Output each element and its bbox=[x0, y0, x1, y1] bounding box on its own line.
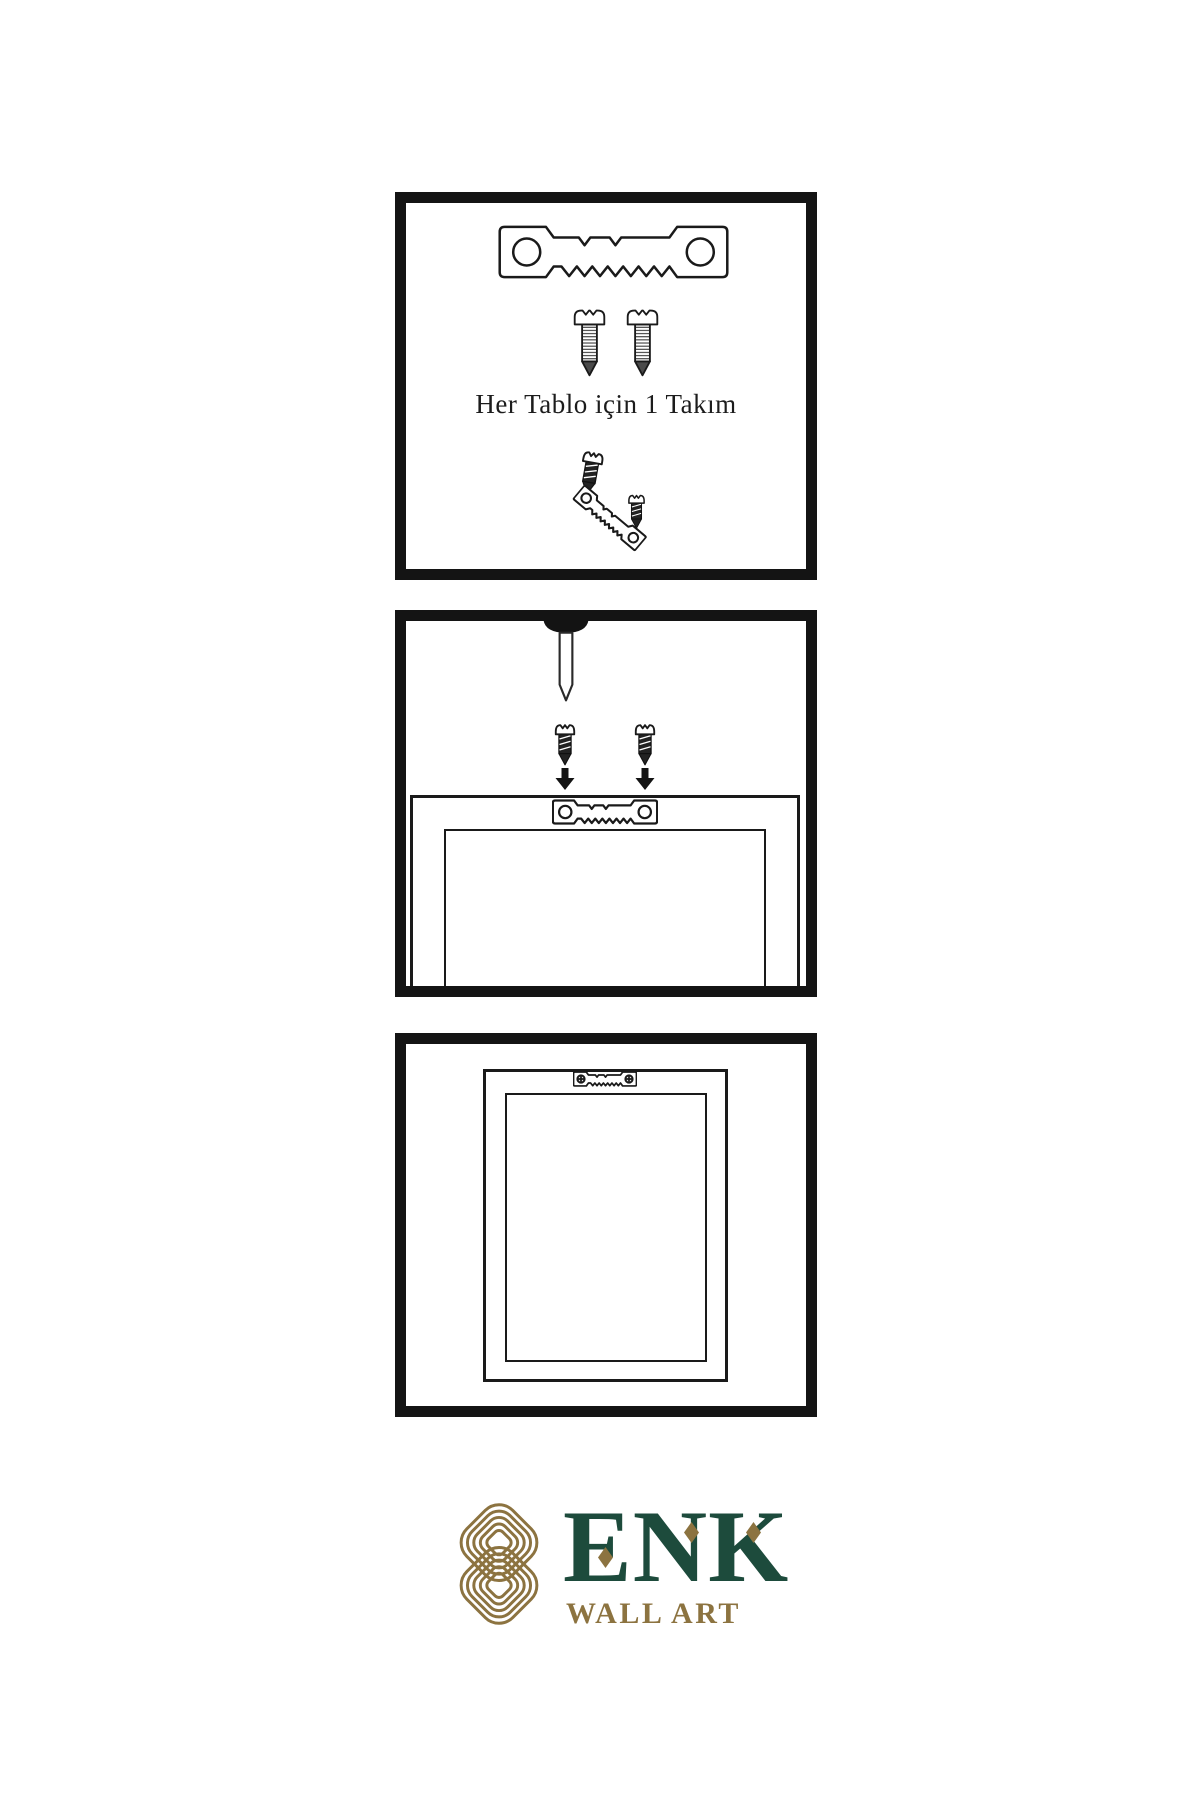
sawtooth-hanger-icon bbox=[552, 799, 658, 825]
screw-icon bbox=[624, 305, 661, 379]
nail-icon bbox=[541, 620, 591, 716]
brand-name: ENK bbox=[563, 1496, 793, 1599]
small-screw-icon bbox=[633, 723, 657, 766]
frame-back-inner bbox=[444, 829, 766, 986]
small-screw-icon bbox=[626, 494, 647, 529]
brand-knot-icon bbox=[434, 1498, 564, 1630]
small-screw-icon bbox=[553, 723, 577, 766]
frame-front-inner bbox=[505, 1093, 707, 1362]
arrow-down-icon bbox=[555, 768, 575, 790]
brand-wordmark: ENK bbox=[563, 1496, 793, 1600]
page: Her Tablo için 1 Takım bbox=[0, 0, 1200, 1800]
arrow-down-icon bbox=[635, 768, 655, 790]
hanger-with-screws-icon bbox=[573, 1071, 637, 1087]
sawtooth-hanger-icon bbox=[497, 225, 730, 279]
brand-subtitle: WALL ART bbox=[566, 1597, 741, 1631]
kit-caption: Her Tablo için 1 Takım bbox=[395, 389, 817, 420]
screw-icon bbox=[571, 305, 608, 379]
